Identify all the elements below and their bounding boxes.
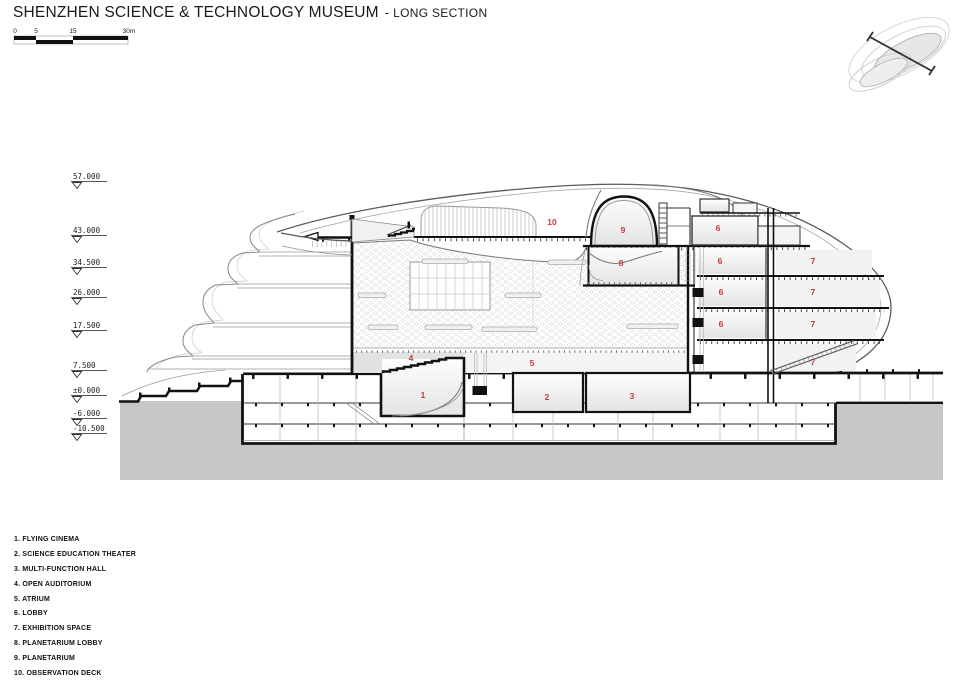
planetarium-dome	[591, 197, 657, 247]
elevator-cab	[693, 288, 704, 297]
legend-item-planetarium-lobby: 8. PLANETARIUM LOBBY	[14, 637, 136, 652]
legend-item-observation-deck: 10. OBSERVATION DECK	[14, 667, 136, 680]
svg-text:5: 5	[34, 28, 38, 35]
room-label-planetarium: 9	[621, 225, 626, 235]
drawing-sheet: SHENZHEN SCIENCE & TECHNOLOGY MUSEUM-LON…	[0, 0, 960, 680]
svg-text:0: 0	[13, 28, 17, 35]
svg-text:15: 15	[69, 28, 77, 35]
legend-item-exhibition-space: 7. EXHIBITION SPACE	[14, 622, 136, 637]
svg-text:34.500: 34.500	[73, 258, 101, 267]
facade-floor-lines	[147, 252, 352, 369]
rooftop-lobby-box	[692, 216, 758, 245]
room-label-exhibition: 7	[811, 319, 816, 329]
legend-item-multi-function-hall: 3. MULTI-FUNCTION HALL	[14, 563, 136, 578]
svg-text:-10.500: -10.500	[73, 424, 105, 433]
legend-item-flying-cinema: 1. FLYING CINEMA	[14, 533, 136, 548]
room-label-open-auditorium: 4	[409, 353, 414, 363]
room-label-lobby: 6	[719, 287, 724, 297]
elevation-markers: 57.000 43.000 34.500 26.000 17.500	[71, 172, 107, 441]
scale-bar: 0 5 15 30m	[13, 28, 135, 44]
svg-text:7.500: 7.500	[73, 361, 96, 370]
elevator-cab	[693, 355, 704, 364]
room-label-science-education-theater: 2	[545, 392, 550, 402]
multi-function-hall-room	[586, 373, 690, 412]
elevation-marker: 34.500	[71, 258, 107, 275]
elevation-marker: 17.500	[71, 321, 107, 338]
svg-text:43.000: 43.000	[73, 226, 101, 235]
room-label-lobby: 6	[719, 319, 724, 329]
scalloped-facade	[147, 211, 352, 372]
canopy-dart	[305, 233, 318, 241]
elevation-marker: 7.500	[71, 361, 107, 378]
room-label-flying-cinema: 1	[421, 390, 426, 400]
section-drawing: 57.000 43.000 34.500 26.000 17.500	[0, 0, 960, 680]
legend-item-lobby: 6. LOBBY	[14, 607, 136, 622]
elevation-marker: -10.500	[71, 424, 107, 441]
rooftop-structures	[659, 199, 800, 246]
room-label-exhibition: 7	[811, 357, 816, 367]
legend-item-science-education-theater: 2. SCIENCE EDUCATION THEATER	[14, 548, 136, 563]
elevation-marker: 57.000	[71, 172, 107, 189]
room-label-lobby: 6	[718, 256, 723, 266]
planetarium-lobby	[580, 247, 701, 286]
elevator-cab	[693, 318, 704, 327]
room-label-exhibition: 7	[811, 256, 816, 266]
svg-text:-6.000: -6.000	[73, 409, 101, 418]
svg-text:26.000: 26.000	[73, 288, 101, 297]
planetarium	[583, 197, 810, 249]
room-label-multi-function-hall: 3	[630, 391, 635, 401]
hall-window	[410, 262, 490, 310]
elevation-marker: ±0.000	[71, 386, 107, 403]
svg-text:30m: 30m	[123, 28, 136, 35]
room-label-planetarium-lobby: 8	[619, 258, 624, 268]
room-label-observation-deck: 10	[547, 217, 557, 227]
legend-item-atrium: 5. ATRIUM	[14, 593, 136, 608]
room-label-lobby: 6	[716, 223, 721, 233]
elevation-marker: 43.000	[71, 226, 107, 243]
key-plan	[839, 4, 959, 99]
terrace-steps	[119, 381, 243, 402]
legend-item-open-auditorium: 4. OPEN AUDITORIUM	[14, 578, 136, 593]
legend-item-planetarium: 9. PLANETARIUM	[14, 652, 136, 667]
room-label-exhibition: 7	[811, 287, 816, 297]
elevator-cab	[473, 386, 488, 395]
deck-glazed-volume	[421, 206, 536, 237]
svg-text:57.000: 57.000	[73, 172, 101, 181]
svg-text:17.500: 17.500	[73, 321, 101, 330]
basement-halls	[513, 373, 690, 412]
elevation-marker: 26.000	[71, 288, 107, 305]
room-label-atrium: 5	[530, 358, 535, 368]
svg-text:±0.000: ±0.000	[73, 386, 101, 395]
legend: 1. FLYING CINEMA 2. SCIENCE EDUCATION TH…	[14, 533, 136, 680]
